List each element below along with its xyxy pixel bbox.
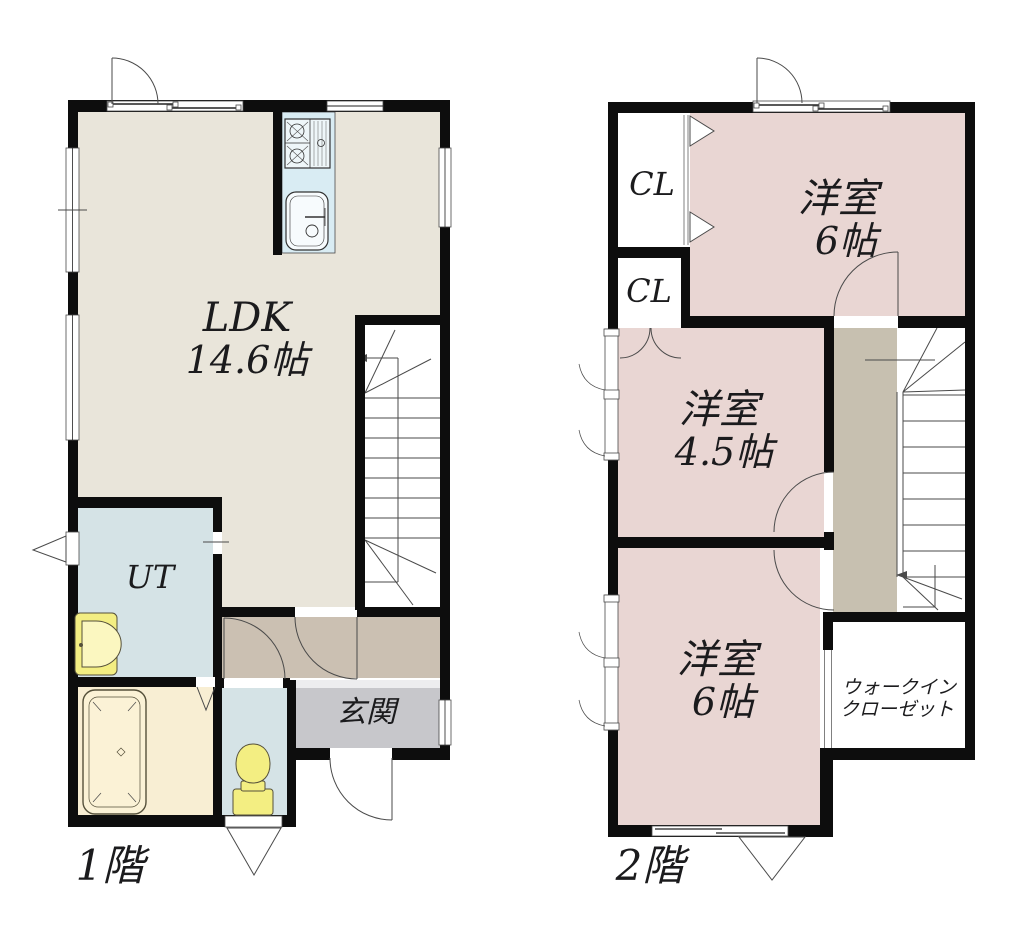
bedroom-middle-size: 4.5帖 (675, 433, 773, 471)
stove-icon (285, 119, 330, 168)
floor2-title: 2階 (616, 845, 685, 887)
bedroom-south-size: 6帖 (692, 683, 754, 721)
stair-direction-arrow-2f (896, 571, 907, 579)
bedroom-middle-label: 洋室 (679, 390, 759, 430)
door-ldk-top-swing (112, 58, 158, 104)
walk-in-closet-label-line1: ウォークイン (842, 679, 956, 698)
washbasin-icon (75, 613, 121, 675)
bedroom-south-label: 洋室 (677, 640, 757, 680)
ldk-room-label: LDK (203, 298, 292, 338)
window-entrance-right (439, 700, 451, 745)
ldk-size-label: 14.6帖 (186, 341, 309, 379)
sink-icon (286, 192, 328, 250)
window-utility-left (33, 532, 79, 565)
window-bedroom-south-left (579, 595, 619, 730)
closet-upper-label: CL (629, 168, 675, 200)
floor2-door-openings (823, 650, 833, 748)
door-2f-top-swing (757, 58, 802, 103)
entrance-step (296, 680, 440, 688)
window-toilet-bottom (225, 816, 282, 875)
vent-marker-bedroom-south (739, 837, 805, 880)
window-bedroom-middle-left (579, 329, 619, 460)
window-ldk-left-lower (66, 315, 79, 440)
vent-marker-utility (33, 536, 66, 562)
bathtub-icon (83, 690, 146, 814)
floor-plan-canvas: LDK 14.6帖 UT 玄関 1階 CL CL 洋室 6帖 洋室 4.5帖 洋… (0, 0, 1024, 950)
closet-lower-label: CL (626, 275, 672, 307)
entrance-label: 玄関 (336, 698, 396, 728)
front-door-swing (330, 758, 392, 820)
staircase-1f-floor (365, 325, 440, 607)
window-ldk-right (439, 148, 451, 227)
floor-plan-drawing (0, 0, 1024, 950)
utility-room-label: UT (126, 561, 174, 593)
floor1-plan (33, 58, 451, 875)
bedroom-north-size: 6帖 (815, 222, 877, 260)
vent-marker-toilet (227, 828, 281, 875)
bedroom-north-label: 洋室 (798, 179, 878, 219)
floor1-title: 1階 (76, 845, 145, 887)
window-kitchen-top (327, 101, 383, 111)
window-2f-top-sliding (753, 101, 890, 112)
hallway-2f-floor (833, 328, 897, 612)
window-ldk-top-sliding (107, 101, 243, 111)
walk-in-closet-label-line2: クローゼット (840, 701, 954, 720)
